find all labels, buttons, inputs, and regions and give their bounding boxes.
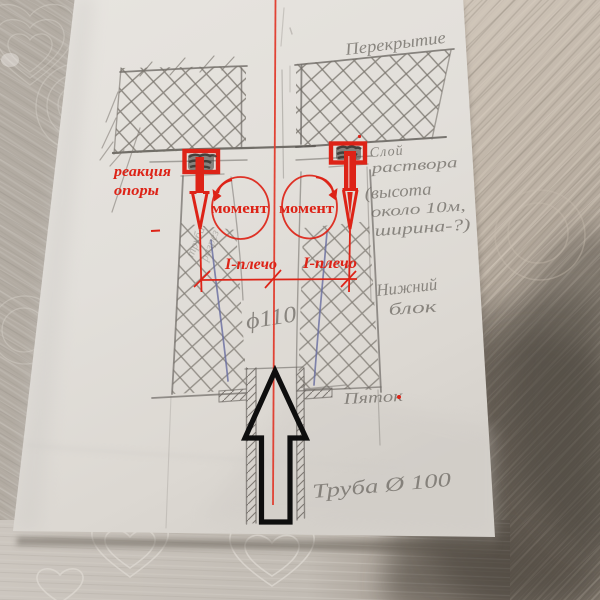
svg-text:опоры: опоры (114, 183, 159, 199)
svg-text:I-плечо: I-плечо (224, 256, 277, 273)
svg-text:момент: момент (211, 201, 268, 217)
svg-text:блок: блок (388, 297, 439, 319)
svg-text:момент: момент (279, 201, 334, 217)
svg-text:I-плечо: I-плечо (302, 255, 357, 272)
svg-text:Пяток: Пяток (342, 388, 404, 408)
svg-text:реакция: реакция (112, 164, 171, 180)
